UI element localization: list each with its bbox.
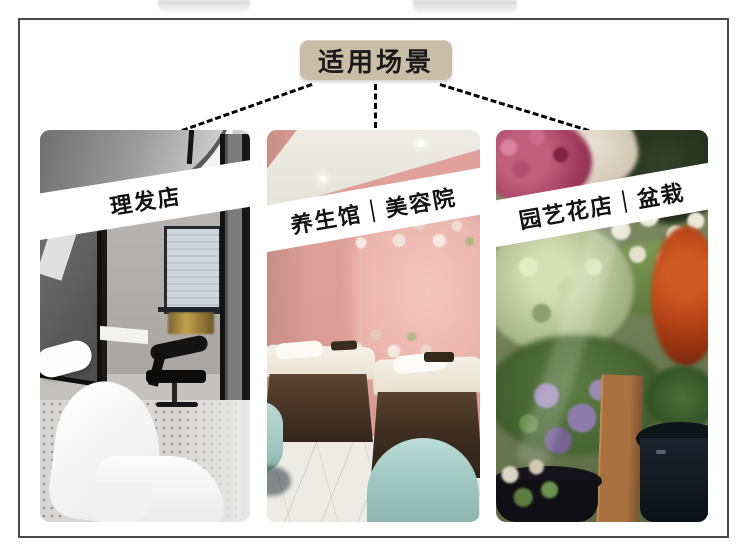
ceiling-spotlight [417,140,424,147]
scene-label: 理发店 [107,179,183,222]
cardboard-plank [596,374,643,522]
scene-card-flower-shop: 园艺花店｜盆栽 [496,130,708,522]
scene-card-spa-beauty: 养生馆｜美容院 [267,130,480,522]
ceiling-spotlight [320,176,326,182]
leaves-over-bucket [646,366,708,430]
black-chair-pole [172,383,177,403]
usage-scenarios-section: 适用场景 理发店 [0,0,750,545]
bucket-glint [656,450,666,454]
black-chair-seat [146,370,206,383]
scene-card-barbershop: 理发店 [40,130,250,522]
black-chair-base [156,402,198,407]
section-title-badge: 适用场景 [300,40,452,80]
red-flower-cluster [651,226,708,366]
tray-left-bed [331,340,357,350]
window-ledge [158,307,224,312]
top-remnant-shape-right [413,0,517,15]
dashed-connector-middle [374,84,377,128]
window-blinds [164,226,222,314]
tray-right-bed [424,352,454,362]
top-remnant-shape-left [158,0,250,13]
bottom-left-flowers [496,448,576,522]
bucket-right [640,438,708,522]
section-title: 适用场景 [318,42,434,79]
white-chair-front [88,482,152,522]
gold-artwork [168,312,214,334]
